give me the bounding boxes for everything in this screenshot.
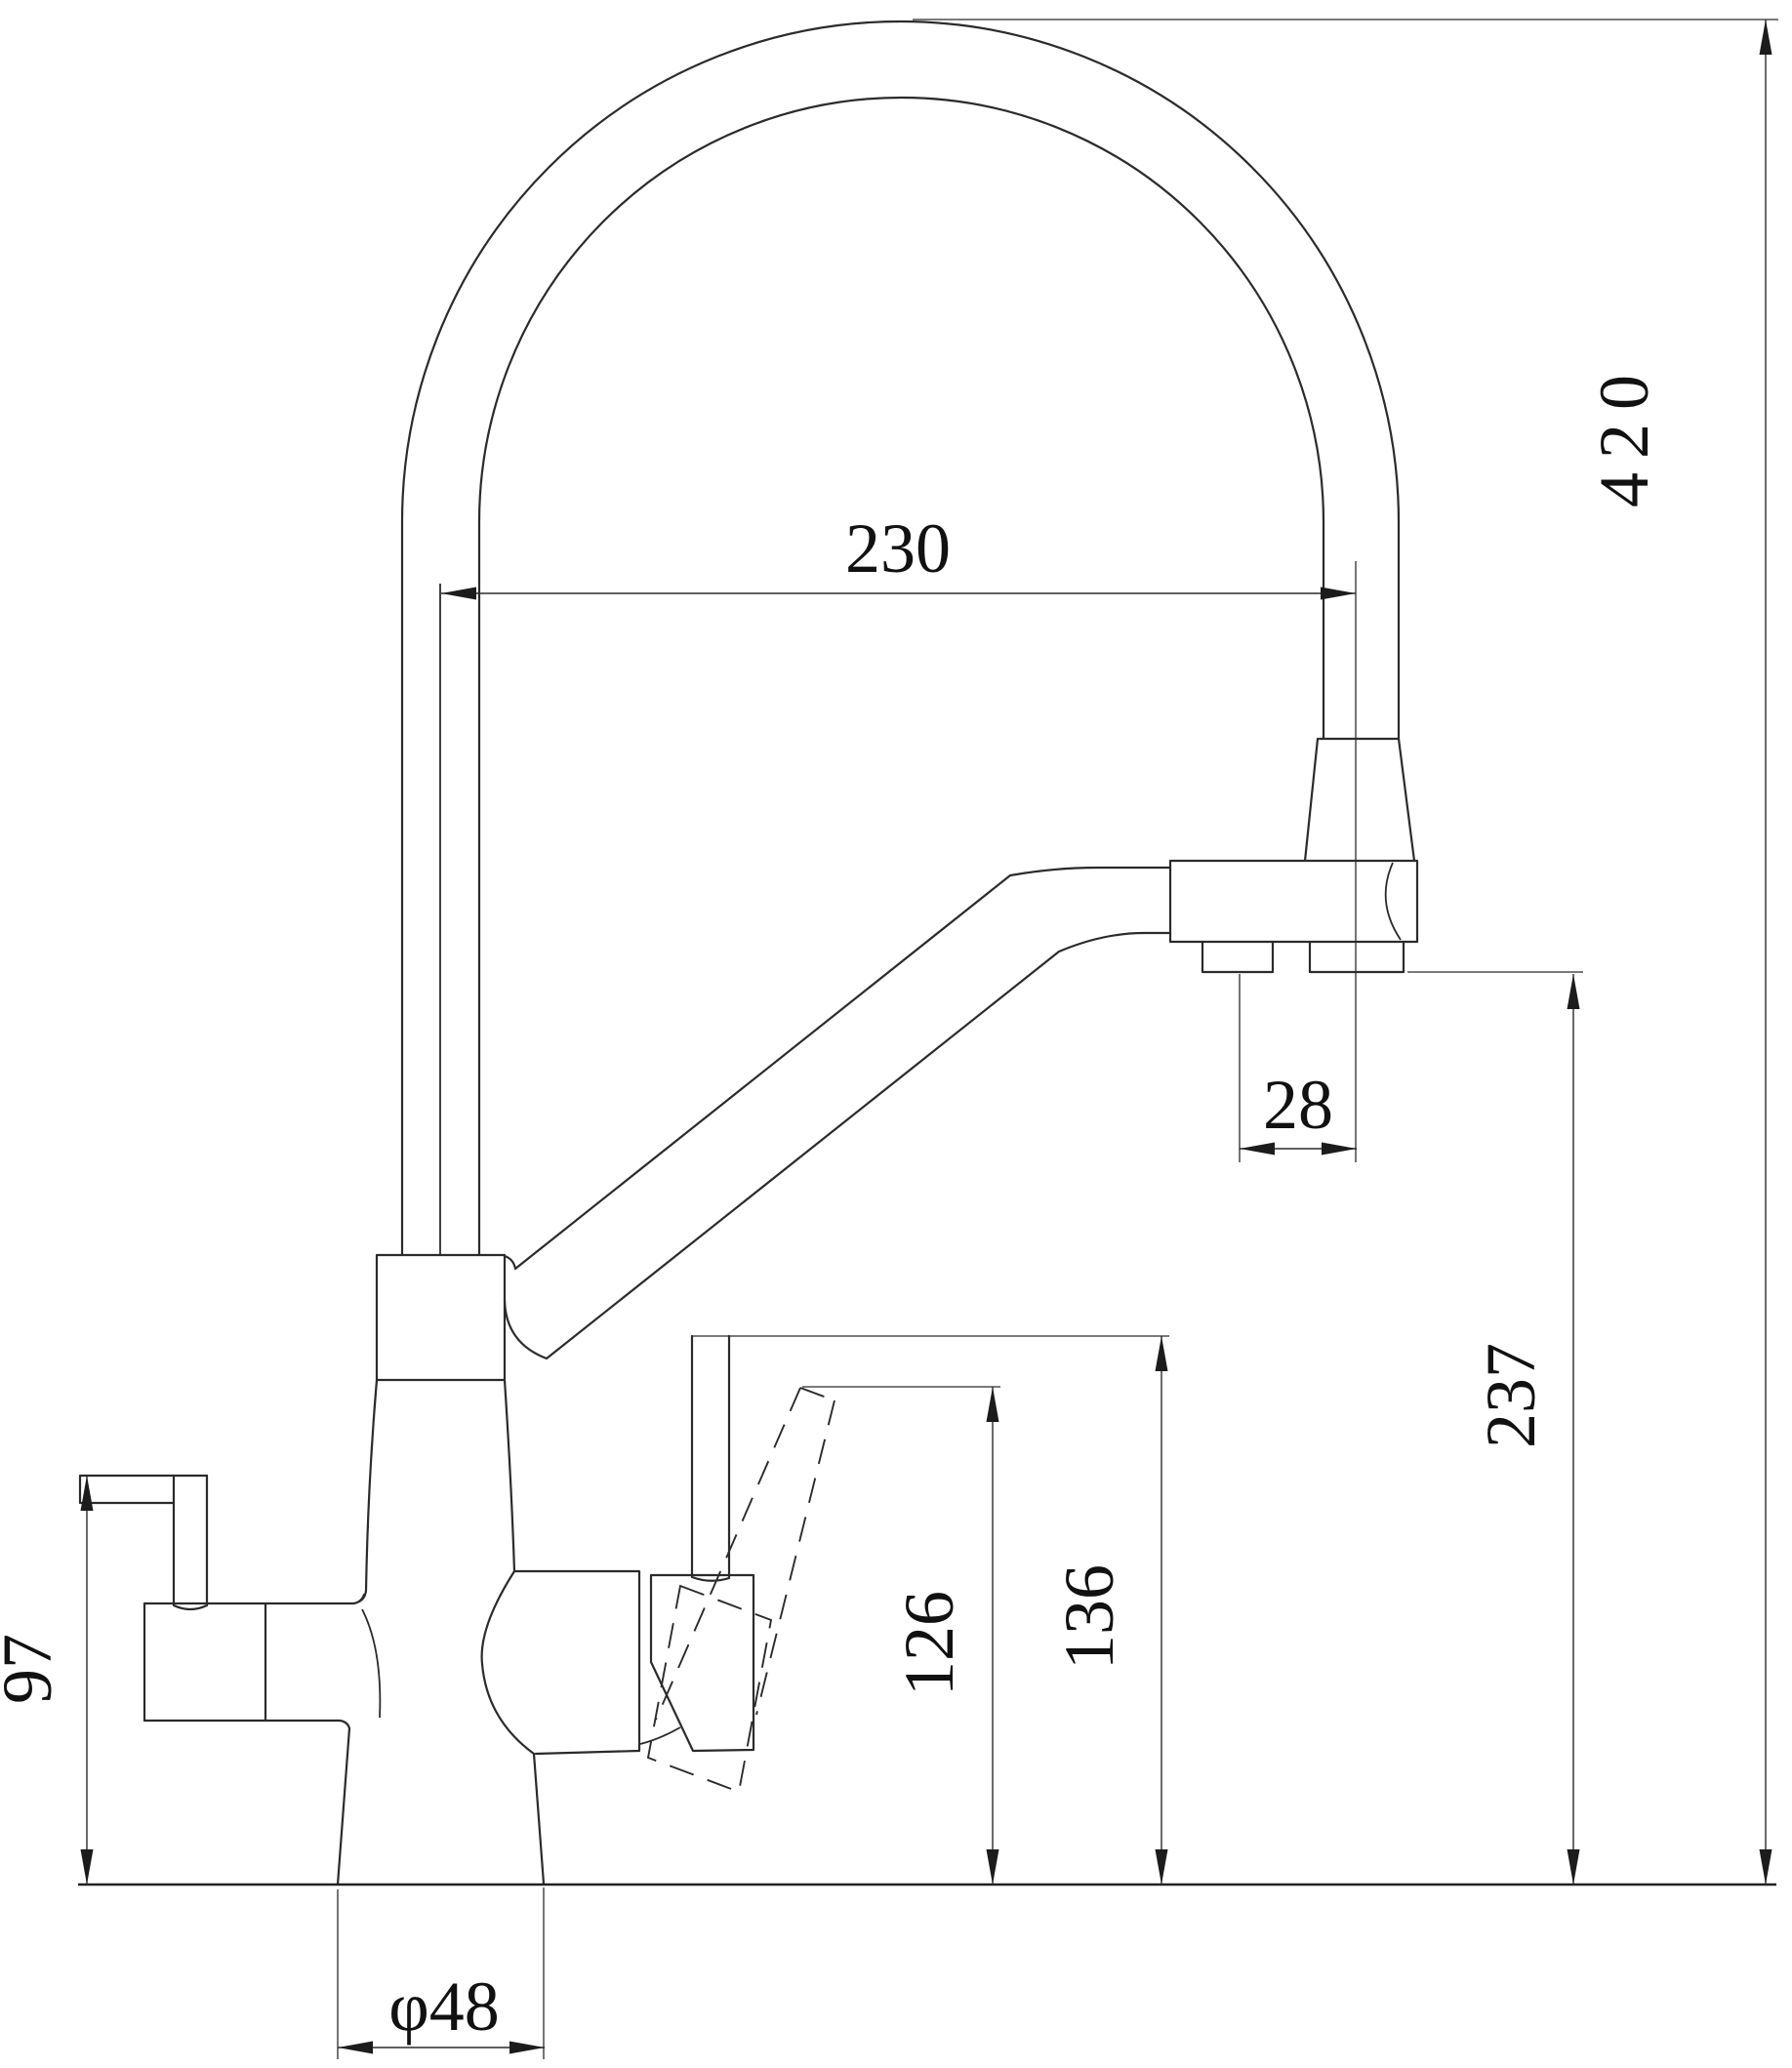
arrowhead-up	[1568, 974, 1580, 1009]
arrowhead-down	[1568, 1849, 1580, 1885]
arrowhead-right	[1322, 1143, 1357, 1156]
base-left-edge	[338, 1728, 349, 1885]
dimension-label-420: 420	[1585, 361, 1663, 507]
dimension-base-diameter: φ48	[338, 1887, 545, 2059]
arrowhead-right	[1321, 588, 1356, 600]
dimension-label-136: 136	[1050, 1564, 1128, 1670]
dashed-lever-top	[800, 1388, 835, 1400]
faucet-body	[338, 1255, 544, 1885]
outlet-block	[1170, 861, 1417, 942]
lever-bar	[692, 1336, 729, 1581]
spray-cone-right	[1399, 739, 1414, 861]
left-boss-top	[144, 1595, 364, 1603]
dimension-label-28: 28	[1263, 1066, 1333, 1144]
dimension-lever-alt-height: 126	[802, 1387, 1000, 1885]
dimension-outlet-spacing: 28	[1240, 974, 1357, 1162]
filter-handle	[80, 1476, 364, 1728]
ball-joint-arc	[640, 1727, 680, 1744]
arrowhead-down	[987, 1849, 999, 1885]
arm-lower-line	[505, 933, 1170, 1358]
arrowhead-left	[338, 2042, 373, 2054]
mixer-lever-assembly	[514, 1336, 753, 1754]
dimension-label-230: 230	[845, 509, 951, 588]
body-right-edge	[505, 1380, 514, 1571]
left-boss-bottom	[144, 1721, 349, 1728]
dimension-outlet-height: 237	[1407, 972, 1583, 1885]
dashed-lever-line-2	[756, 1400, 835, 1715]
handle-grip	[80, 1476, 207, 1503]
arm-upper-line	[505, 868, 1170, 1269]
drawing-sheet: 230 28 420 237 136 126	[0, 0, 1792, 2068]
dimension-label-126: 126	[890, 1591, 968, 1696]
outlet-block-curve	[1386, 863, 1401, 940]
aerator-right	[1310, 942, 1404, 972]
dimension-label-d48: φ48	[388, 1967, 500, 2046]
spout-inner-arc	[479, 98, 1324, 522]
aerator-left	[1202, 942, 1273, 972]
arrowhead-left	[1240, 1143, 1275, 1156]
supply-arm	[505, 868, 1170, 1358]
gooseneck-spout	[402, 21, 1399, 1255]
dimension-label-97: 97	[0, 1634, 66, 1704]
neck-collar	[377, 1255, 505, 1380]
body-right-waist	[482, 1571, 534, 1754]
lever-alternate-position	[648, 1388, 835, 1792]
arrowhead-up	[81, 1476, 94, 1511]
dimension-handle-height: 97	[0, 1476, 94, 1885]
arrowhead-up	[987, 1387, 999, 1422]
faucet-technical-drawing: 230 28 420 237 136 126	[0, 0, 1792, 2068]
arrowhead-up	[1760, 20, 1772, 55]
body-left-waist	[362, 1609, 380, 1718]
right-boss	[514, 1571, 639, 1754]
arrowhead-up	[1156, 1336, 1168, 1371]
dimension-label-237: 237	[1472, 1343, 1550, 1448]
arrowhead-right	[509, 2042, 545, 2054]
base-right-edge	[534, 1754, 544, 1884]
handle-stem	[174, 1476, 207, 1609]
arrowhead-down	[1760, 1849, 1772, 1885]
spray-cone-left	[1305, 739, 1318, 861]
arrowhead-left	[441, 588, 476, 600]
arrowhead-down	[81, 1849, 94, 1885]
arrowhead-down	[1156, 1849, 1168, 1885]
spray-head	[1170, 739, 1417, 972]
body-left-edge	[359, 1380, 377, 1602]
dimension-spout-reach: 230	[441, 509, 1356, 1162]
